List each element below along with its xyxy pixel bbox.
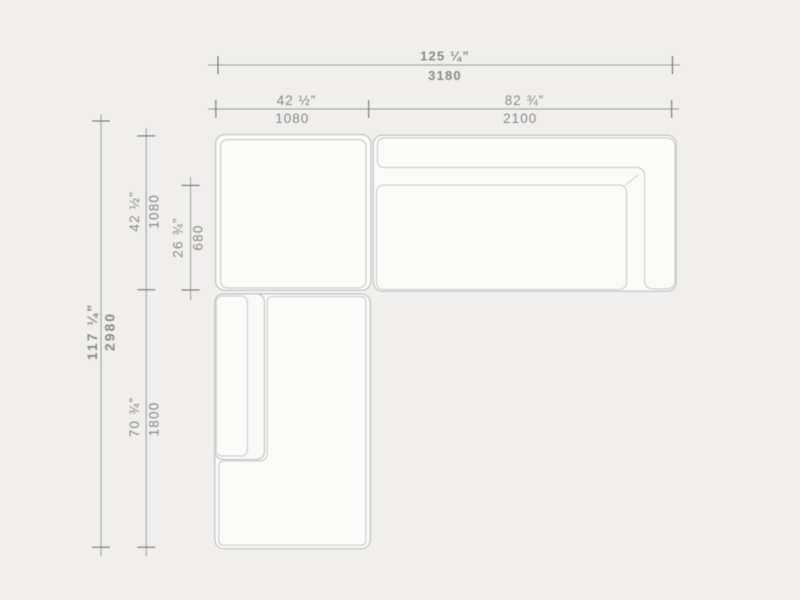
svg-text:3180: 3180 — [428, 68, 462, 83]
svg-text:70 ¾”: 70 ¾” — [127, 397, 142, 438]
svg-text:2980: 2980 — [101, 312, 117, 351]
svg-text:1080: 1080 — [275, 111, 309, 126]
svg-text:125 ¼”: 125 ¼” — [420, 49, 470, 64]
svg-text:82 ¾”: 82 ¾” — [505, 93, 545, 108]
svg-text:42 ½”: 42 ½” — [127, 191, 142, 232]
svg-text:1800: 1800 — [146, 402, 161, 437]
svg-text:26 ¾”: 26 ¾” — [170, 217, 185, 258]
svg-text:2100: 2100 — [503, 111, 537, 126]
svg-text:42 ½”: 42 ½” — [277, 93, 317, 108]
svg-text:117 ¼”: 117 ¼” — [84, 303, 100, 360]
svg-text:1080: 1080 — [146, 194, 161, 229]
svg-text:680: 680 — [191, 224, 206, 250]
